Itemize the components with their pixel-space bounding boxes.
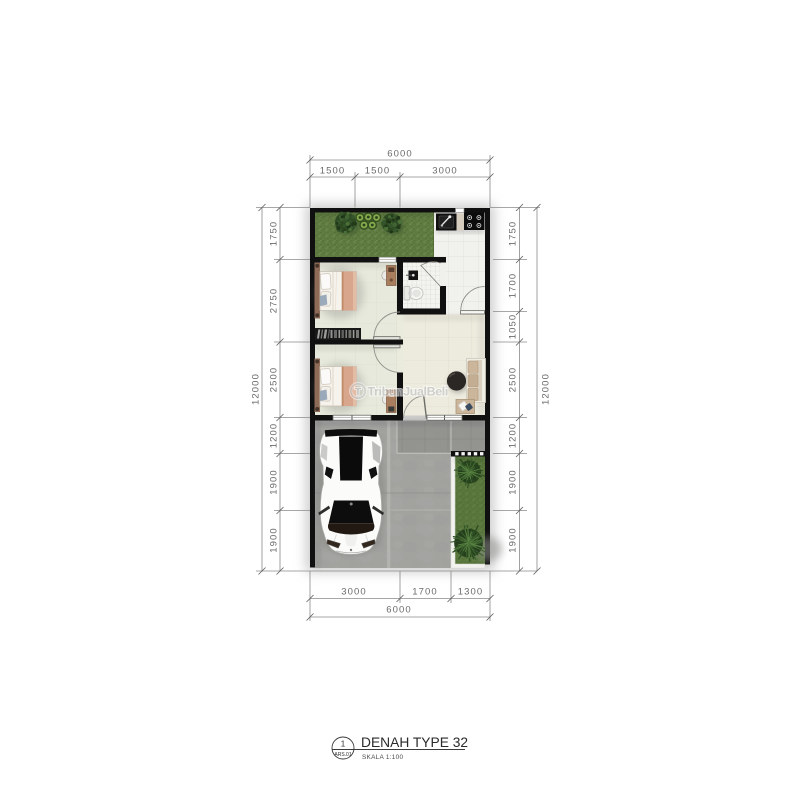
svg-text:1300: 1300 bbox=[458, 587, 484, 598]
svg-text:12000: 12000 bbox=[251, 373, 262, 405]
svg-text:2500: 2500 bbox=[269, 367, 280, 393]
svg-text:1900: 1900 bbox=[508, 527, 519, 553]
svg-text:T: T bbox=[355, 386, 362, 398]
svg-text:3000: 3000 bbox=[432, 166, 458, 177]
svg-text:1700: 1700 bbox=[508, 273, 519, 299]
svg-text:6000: 6000 bbox=[386, 605, 412, 616]
svg-text:DENAH TYPE 32: DENAH TYPE 32 bbox=[361, 735, 468, 750]
svg-text:1900: 1900 bbox=[269, 527, 280, 553]
svg-text:2500: 2500 bbox=[508, 367, 519, 393]
svg-text:1750: 1750 bbox=[508, 221, 519, 247]
svg-text:TribunJualBeli: TribunJualBeli bbox=[368, 384, 448, 398]
svg-text:1050: 1050 bbox=[508, 314, 519, 340]
svg-text:1: 1 bbox=[341, 740, 346, 749]
svg-text:SKALA 1:100: SKALA 1:100 bbox=[362, 754, 403, 761]
svg-text:1200: 1200 bbox=[508, 423, 519, 449]
svg-text:1900: 1900 bbox=[269, 469, 280, 495]
svg-text:6000: 6000 bbox=[387, 149, 413, 160]
svg-text:ARS.01: ARS.01 bbox=[334, 752, 351, 758]
svg-text:1700: 1700 bbox=[412, 587, 438, 598]
svg-text:1500: 1500 bbox=[365, 166, 391, 177]
svg-text:1750: 1750 bbox=[269, 221, 280, 247]
svg-text:12000: 12000 bbox=[541, 373, 552, 405]
svg-text:3000: 3000 bbox=[341, 587, 367, 598]
svg-text:1900: 1900 bbox=[508, 469, 519, 495]
svg-text:2750: 2750 bbox=[269, 288, 280, 314]
svg-text:1500: 1500 bbox=[320, 166, 346, 177]
svg-text:1200: 1200 bbox=[269, 423, 280, 449]
